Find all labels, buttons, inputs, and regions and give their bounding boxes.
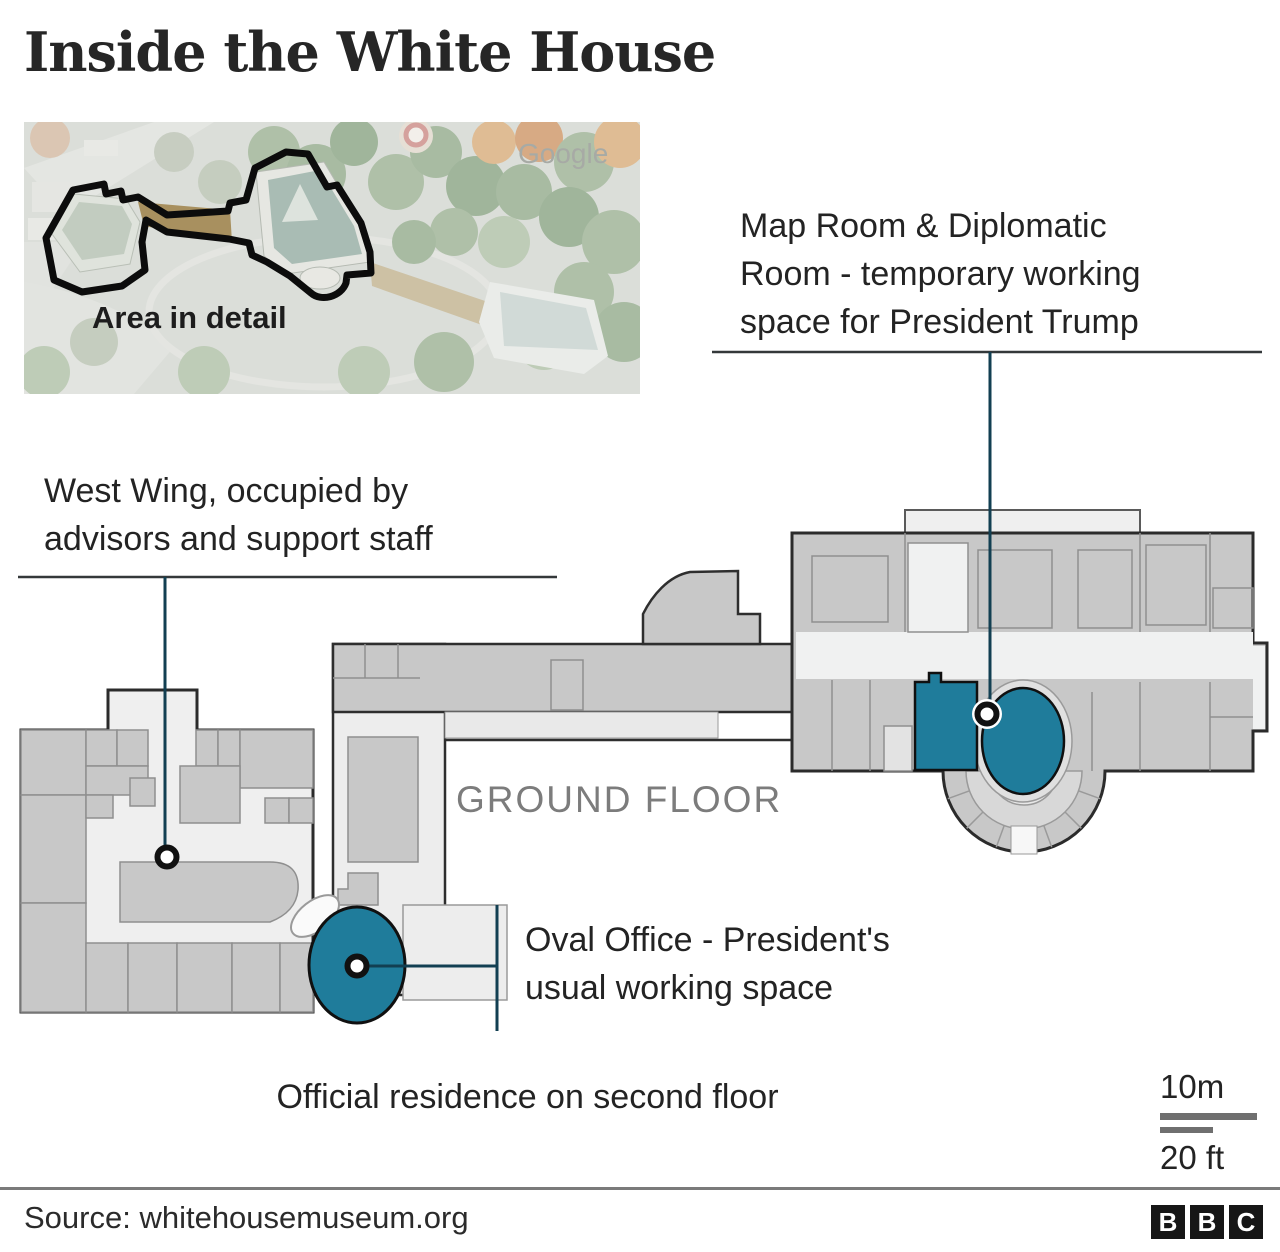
ground-floor-label: GROUND FLOOR <box>456 779 782 821</box>
bbc-logo-letter: B <box>1190 1205 1224 1239</box>
scale-bar-metric <box>1160 1113 1257 1120</box>
scale-imperial-label: 20 ft <box>1160 1139 1270 1177</box>
west-pavilion <box>643 571 760 644</box>
west-wing-annotation: West Wing, occupied by advisors and supp… <box>44 467 574 563</box>
north-portico <box>905 510 1140 534</box>
scale-metric-label: 10m <box>1160 1068 1270 1106</box>
cabinet-room <box>120 862 298 922</box>
map-room-shape <box>915 673 977 770</box>
oval-office-annotation: Oval Office - President's usual working … <box>525 916 995 1012</box>
bbc-logo: B B C <box>1151 1205 1263 1239</box>
map-room-annotation: Map Room & Diplomatic Room - temporary w… <box>740 202 1260 346</box>
residence-annotation: Official residence on second floor <box>0 1078 1055 1117</box>
colonnade-walk <box>445 712 718 738</box>
colonnade-room-small <box>551 660 583 710</box>
entrance-hall <box>908 543 968 632</box>
scale-bar-imperial <box>1160 1127 1213 1133</box>
east-tab <box>1253 646 1265 729</box>
west-wing-marker <box>158 848 177 867</box>
page-title: Inside the White House <box>24 20 715 84</box>
map-room-marker <box>978 705 997 724</box>
terrace-area <box>403 905 507 1000</box>
footer-divider <box>0 1187 1280 1190</box>
residence-small-room <box>884 726 912 771</box>
floor-plan <box>0 0 1280 1252</box>
source-credit: Source: whitehousemuseum.org <box>24 1200 469 1236</box>
colonnade-room <box>348 737 418 862</box>
scale-bar: 10m 20 ft <box>1160 1068 1270 1177</box>
oval-office-marker <box>348 957 367 976</box>
cross-hall <box>796 632 1253 679</box>
bbc-logo-letter: B <box>1151 1205 1185 1239</box>
portico-steps <box>1011 826 1037 854</box>
bbc-logo-letter: C <box>1229 1205 1263 1239</box>
